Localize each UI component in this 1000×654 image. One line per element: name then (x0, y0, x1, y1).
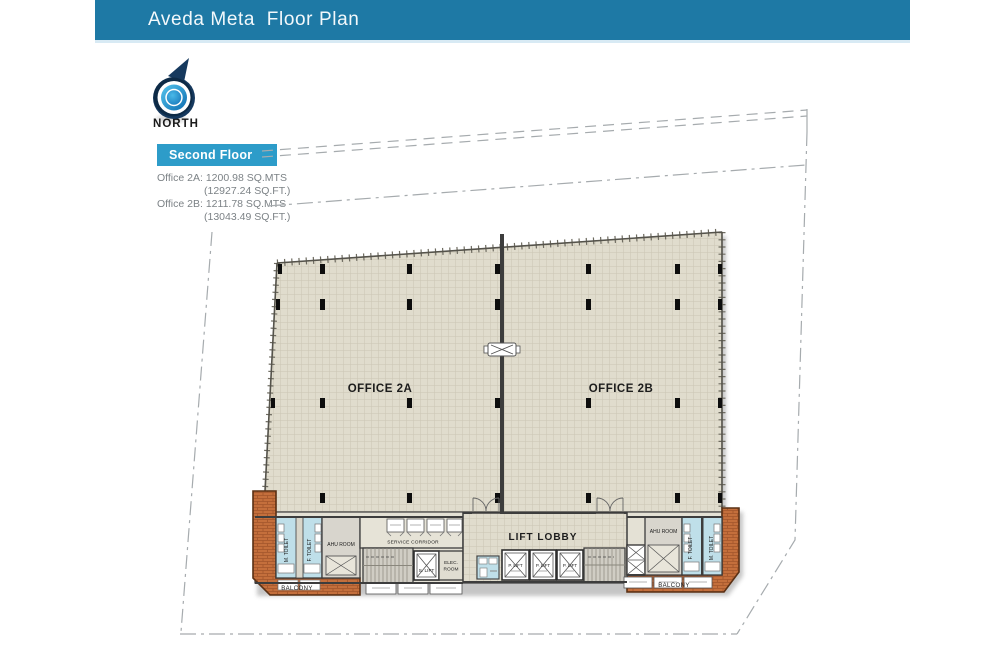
lift-lobby-label: LIFT LOBBY (509, 532, 578, 543)
floor-plan-page: Aveda Meta Floor Plan Second Floor Offic… (0, 0, 1000, 654)
service-shaft-right (627, 545, 645, 575)
stair-right (584, 548, 625, 582)
p-lift-3-label: P. LIFT (563, 563, 577, 568)
elec-room-label-2: ROOM (444, 567, 459, 573)
balcony-right-label: BALCONY (658, 583, 689, 589)
office-slab (264, 232, 722, 512)
elec-room: ELEC. ROOM (439, 551, 463, 580)
ahu-room-right-label: AHU ROOM (650, 529, 678, 535)
s-lift-label: S. LIFT (419, 568, 435, 574)
service-corridor-label: SERVICE CORRIDOR (387, 540, 439, 546)
stair-left (363, 548, 413, 583)
balcony-left-label: BALCONY (281, 586, 312, 592)
p-lift-2-label: P. LIFT (536, 563, 550, 568)
ahu-room-left-label: AHU ROOM (327, 542, 355, 548)
service-lift: S. LIFT (414, 551, 439, 580)
hc-toilet (477, 556, 499, 579)
passenger-lifts: P. LIFT P. LIFT P. LIFT (502, 550, 583, 580)
north-compass-icon (153, 58, 195, 123)
floor-plan-canvas: S. LIFT ELEC. ROOM LIFT LOBBY (0, 0, 1000, 654)
office-2b-label: OFFICE 2B (589, 383, 654, 395)
p-lift-1-label: P. LIFT (508, 563, 522, 568)
f-toilet-right-label: F. TOILET (688, 537, 694, 560)
m-toilet-right-label: M. TOILET (709, 536, 715, 560)
elec-room-label-1: ELEC. (444, 560, 458, 566)
office-2a-label: OFFICE 2A (348, 383, 413, 395)
m-toilet-left-label: M. TOILET (284, 538, 290, 562)
f-toilet-left-label: F. TOILET (307, 539, 313, 562)
ahu-room-right (645, 517, 682, 575)
